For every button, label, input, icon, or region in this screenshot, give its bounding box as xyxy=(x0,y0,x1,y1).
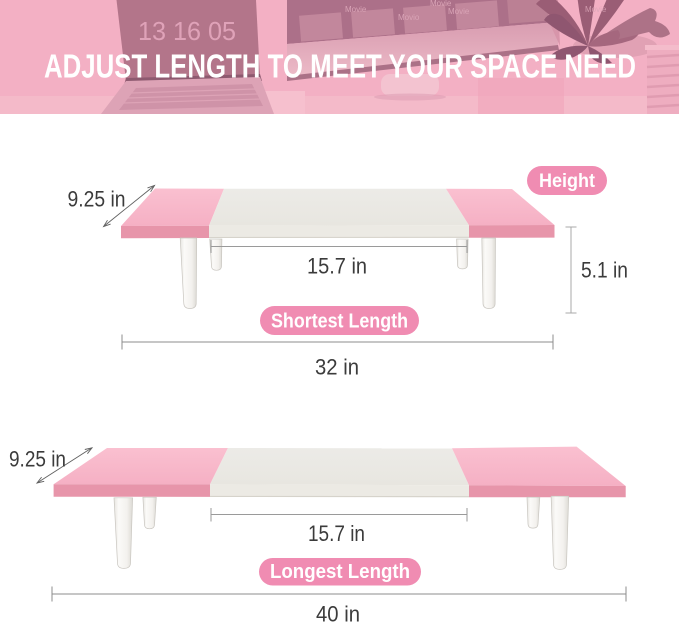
svg-text:Shortest Length: Shortest Length xyxy=(271,311,408,333)
svg-text:9.25 in: 9.25 in xyxy=(9,447,66,472)
svg-text:40 in: 40 in xyxy=(316,602,360,624)
svg-text:Movie: Movie xyxy=(585,5,607,14)
svg-text:15.7 in: 15.7 in xyxy=(308,521,365,546)
svg-text:15.7 in: 15.7 in xyxy=(307,254,367,279)
svg-text:13 16 05: 13 16 05 xyxy=(138,16,236,46)
svg-text:Movie: Movie xyxy=(345,5,367,14)
svg-text:Height: Height xyxy=(539,171,596,192)
svg-text:Longest Length: Longest Length xyxy=(270,561,410,583)
svg-text:Movio: Movio xyxy=(398,13,420,22)
svg-text:32 in: 32 in xyxy=(315,355,359,380)
svg-text:ADJUST LENGTH TO MEET YOUR SPA: ADJUST LENGTH TO MEET YOUR SPACE NEED xyxy=(44,48,636,85)
svg-text:Movie: Movie xyxy=(448,7,470,16)
svg-text:9.25 in: 9.25 in xyxy=(68,187,126,212)
svg-text:5.1 in: 5.1 in xyxy=(581,258,628,283)
